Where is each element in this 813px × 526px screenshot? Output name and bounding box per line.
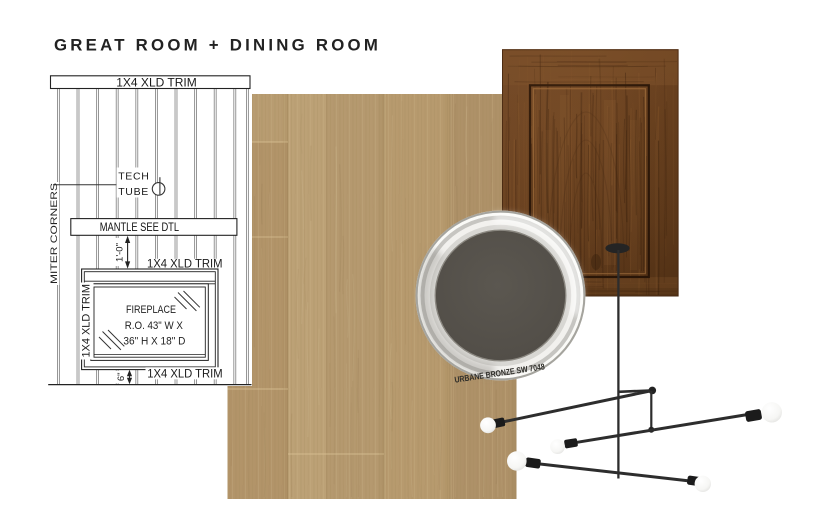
svg-text:GREAT ROOM + DINING ROOM: GREAT ROOM + DINING ROOM (54, 35, 381, 54)
svg-text:MANTLE SEE DTL: MANTLE SEE DTL (100, 220, 180, 234)
svg-text:MITER CORNERS: MITER CORNERS (49, 183, 59, 284)
svg-text:6": 6" (116, 372, 127, 381)
svg-text:36" H X 18" D: 36" H X 18" D (123, 336, 185, 348)
svg-text:1X4 XLD TRIM: 1X4 XLD TRIM (147, 369, 223, 381)
svg-text:R.O. 43" W X: R.O. 43" W X (125, 320, 184, 332)
svg-text:TUBE: TUBE (118, 186, 149, 198)
svg-text:1'-0": 1'-0" (114, 243, 125, 262)
svg-text:FIREPLACE: FIREPLACE (126, 304, 176, 316)
svg-text:TECH: TECH (118, 171, 149, 183)
svg-text:1X4 XLD TRIM: 1X4 XLD TRIM (116, 76, 196, 90)
svg-text:1X4 XLD TRIM: 1X4 XLD TRIM (80, 284, 92, 358)
